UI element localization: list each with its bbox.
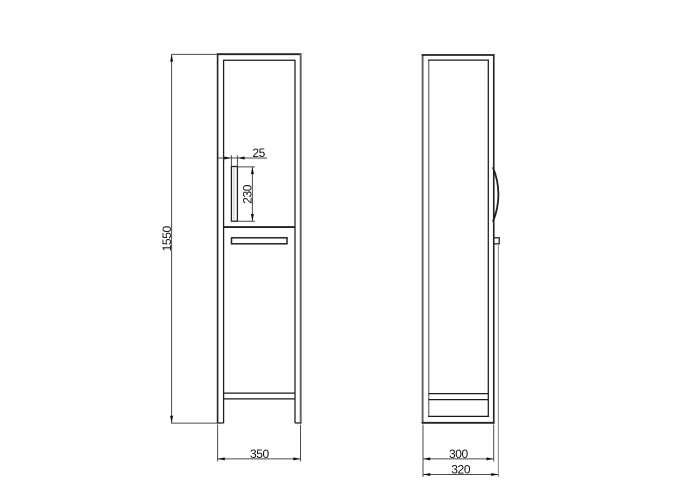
svg-text:1550: 1550 xyxy=(160,226,174,252)
svg-text:25: 25 xyxy=(252,146,265,160)
svg-text:350: 350 xyxy=(250,447,270,461)
svg-text:300: 300 xyxy=(449,447,469,461)
svg-text:320: 320 xyxy=(451,462,471,476)
svg-text:230: 230 xyxy=(241,184,255,204)
